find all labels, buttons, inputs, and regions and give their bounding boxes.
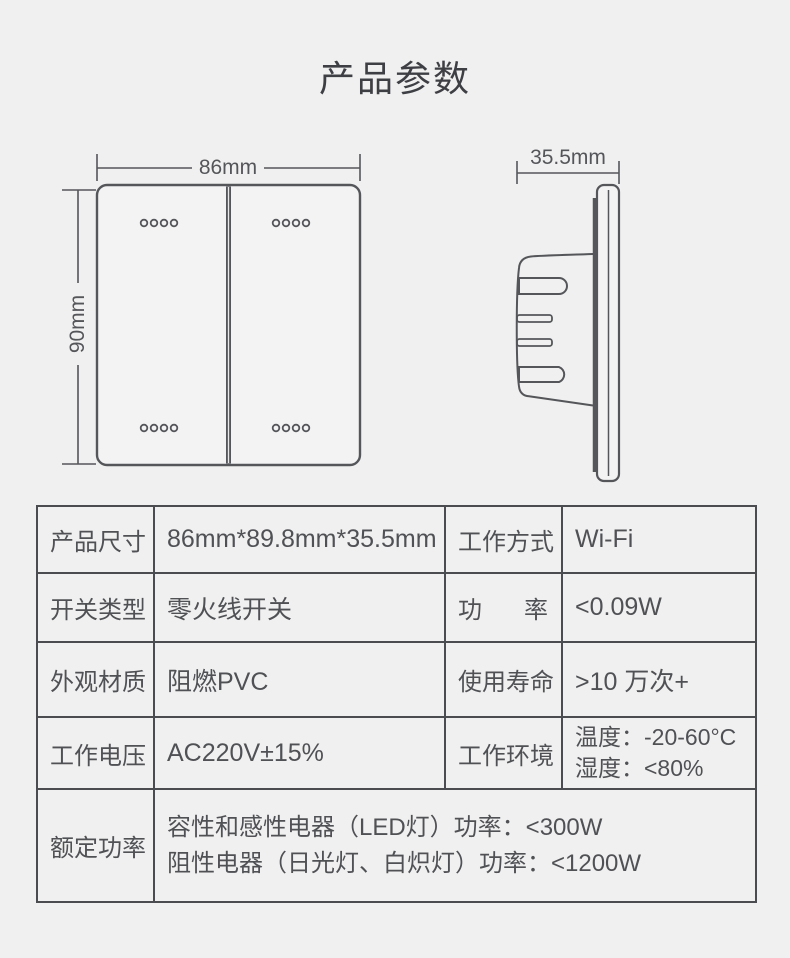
spec-row-voltage: 工作电压 AC220V±15% 工作环境 温度：-20-60°C 湿度：<80%: [37, 717, 756, 789]
spec-value-environment: 温度：-20-60°C 湿度：<80%: [562, 717, 756, 789]
mounting-slot-top: [519, 278, 567, 294]
spec-label-work-mode: 工作方式: [445, 506, 562, 573]
spec-table: 产品尺寸 86mm*89.8mm*35.5mm 工作方式 Wi-Fi 开关类型 …: [36, 505, 757, 903]
page-title: 产品参数: [0, 50, 790, 102]
depth-dimension-label: 35.5mm: [530, 146, 606, 169]
spec-value-rated-power: 容性和感性电器（LED灯）功率：<300W 阻性电器（日光灯、白炽灯）功率：<1…: [154, 789, 756, 902]
spec-value-lifespan: >10 万次+: [562, 642, 756, 717]
height-dimension-label: 90mm: [66, 295, 89, 353]
spec-label-switch-type: 开关类型: [37, 573, 154, 642]
front-view-diagram: 86mm 90mm: [62, 154, 360, 465]
spec-label-environment: 工作环境: [445, 717, 562, 789]
spec-row-switch-type: 开关类型 零火线开关 功率 <0.09W: [37, 573, 756, 642]
spec-label-material: 外观材质: [37, 642, 154, 717]
width-dimension: 86mm: [97, 154, 360, 181]
product-dimension-diagrams: 86mm 90mm 35.5mm: [0, 120, 790, 505]
spec-row-material: 外观材质 阻燃PVC 使用寿命 >10 万次+: [37, 642, 756, 717]
spec-label-voltage: 工作电压: [37, 717, 154, 789]
spec-value-voltage: AC220V±15%: [154, 717, 445, 789]
environment-temperature: 温度：-20-60°C: [575, 722, 743, 753]
spec-value-product-size: 86mm*89.8mm*35.5mm: [154, 506, 445, 573]
depth-dimension: 35.5mm: [517, 146, 619, 184]
spec-label-power: 功率: [445, 573, 562, 642]
spec-row-dimensions: 产品尺寸 86mm*89.8mm*35.5mm 工作方式 Wi-Fi: [37, 506, 756, 573]
spec-label-product-size: 产品尺寸: [37, 506, 154, 573]
spec-label-lifespan: 使用寿命: [445, 642, 562, 717]
side-view-diagram: 35.5mm: [517, 146, 619, 481]
spec-row-rated-power: 额定功率 容性和感性电器（LED灯）功率：<300W 阻性电器（日光灯、白炽灯）…: [37, 789, 756, 902]
environment-humidity: 湿度：<80%: [575, 753, 743, 784]
spec-value-material: 阻燃PVC: [154, 642, 445, 717]
spec-value-power: <0.09W: [562, 573, 756, 642]
mounting-slot-bottom: [519, 367, 564, 382]
mounting-tab-upper: [517, 315, 552, 322]
spec-label-rated-power: 额定功率: [37, 789, 154, 902]
spec-value-work-mode: Wi-Fi: [562, 506, 756, 573]
width-dimension-label: 86mm: [199, 156, 257, 179]
rated-power-capacitive: 容性和感性电器（LED灯）功率：<300W: [167, 810, 743, 846]
height-dimension: 90mm: [62, 190, 96, 464]
spec-value-switch-type: 零火线开关: [154, 573, 445, 642]
mounting-tab-lower: [517, 339, 552, 346]
rated-power-resistive: 阻性电器（日光灯、白炽灯）功率：<1200W: [167, 846, 743, 882]
